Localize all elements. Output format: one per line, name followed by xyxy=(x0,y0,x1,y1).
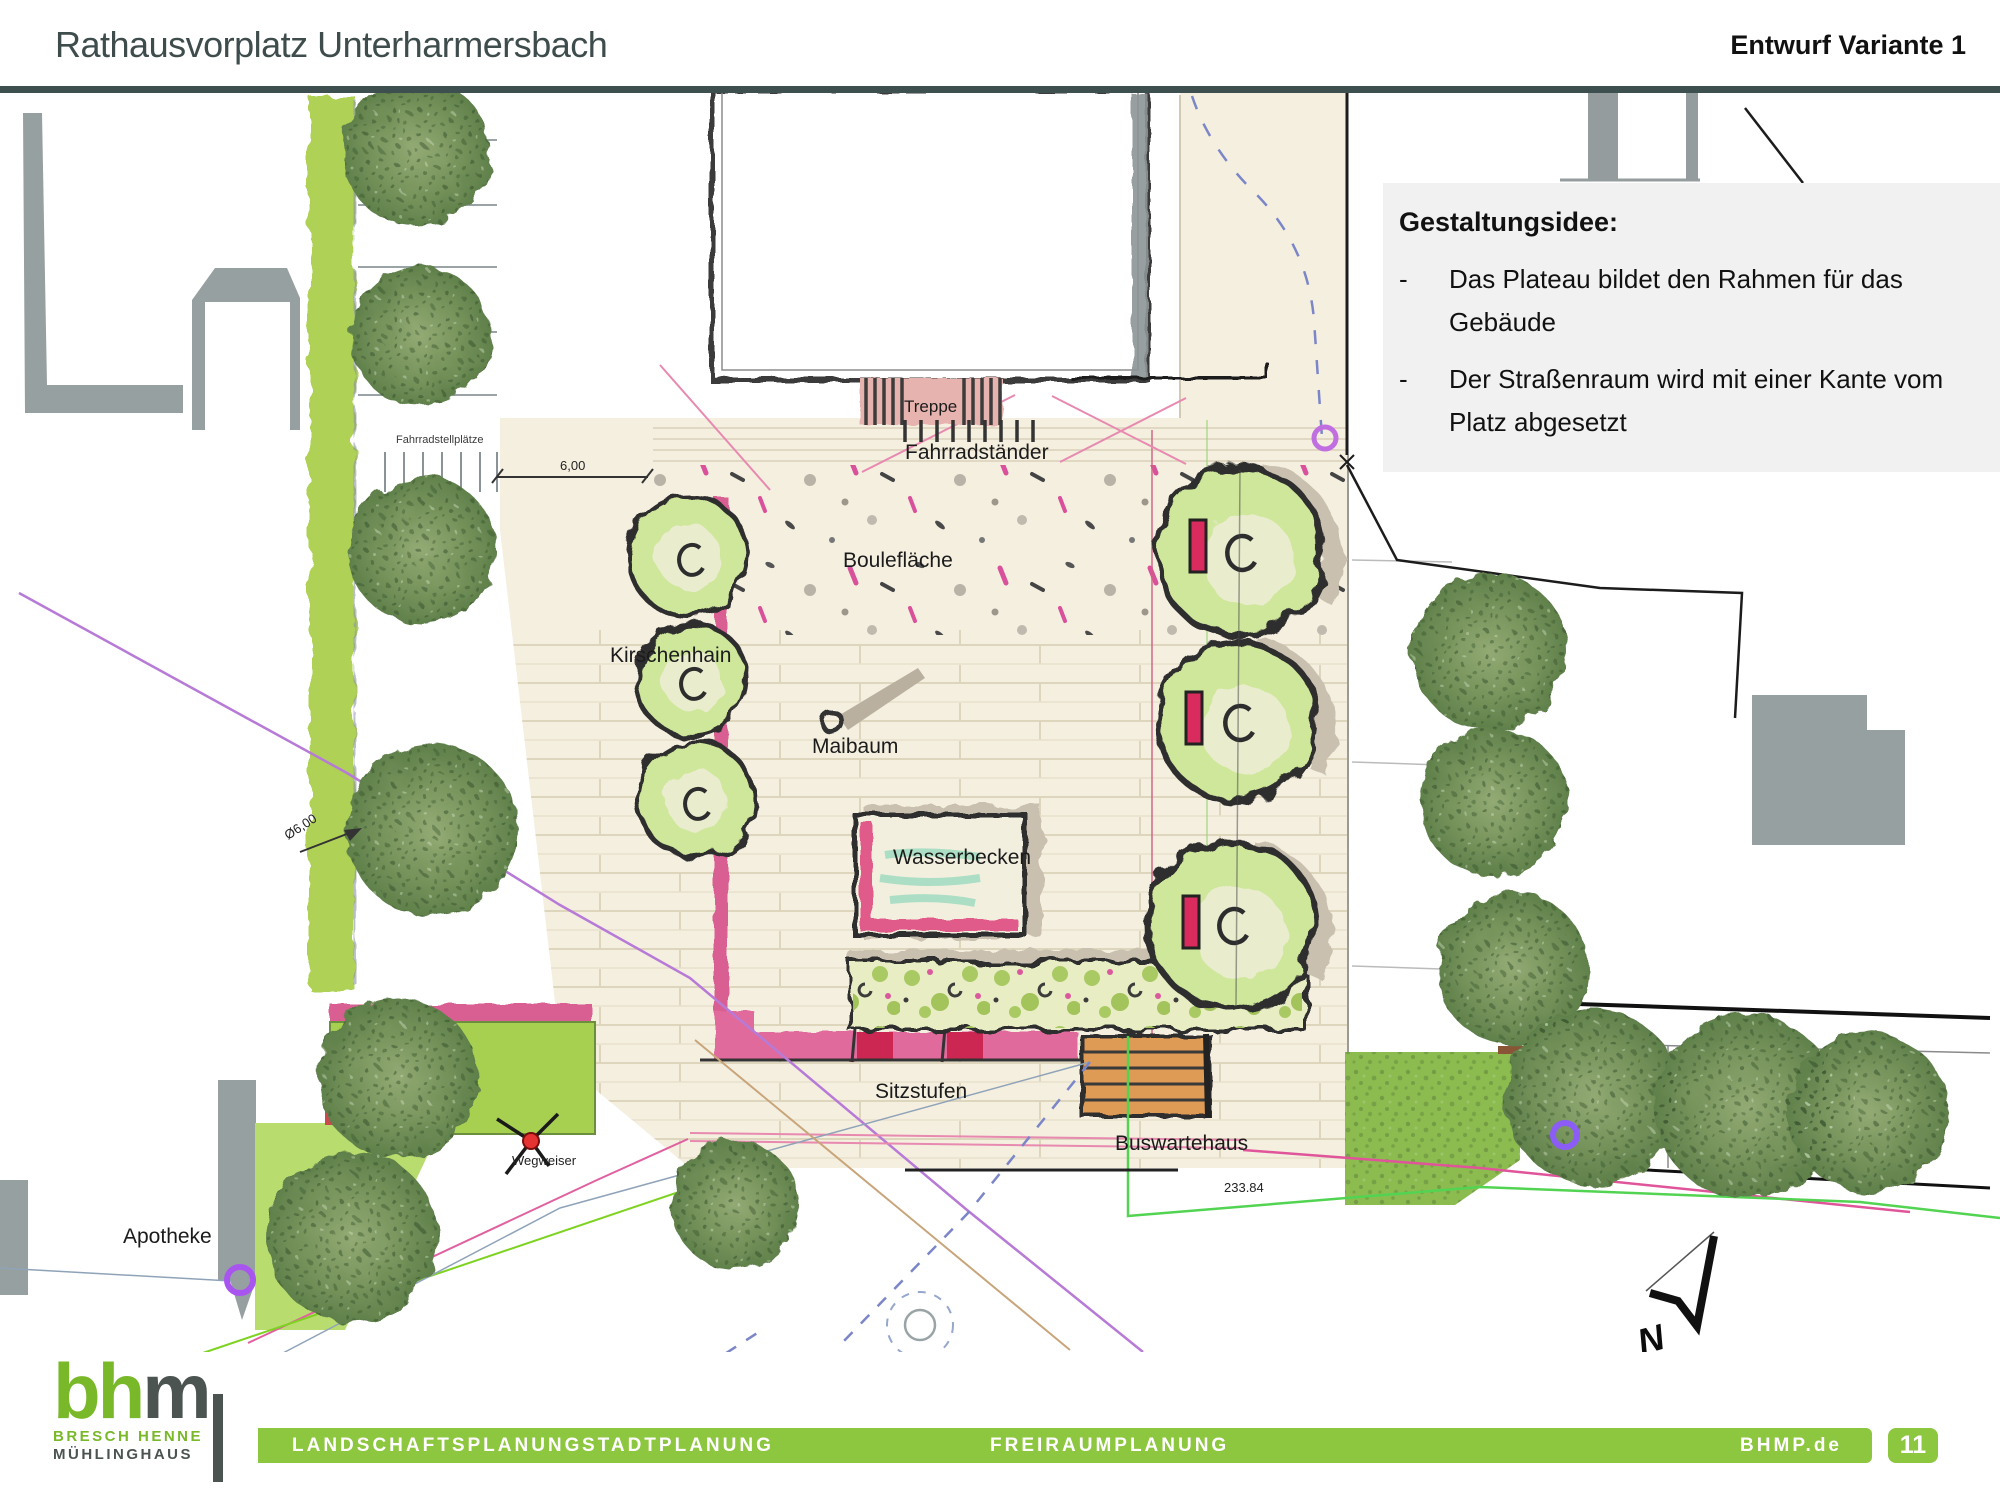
label-wegweiser: Wegweiser xyxy=(512,1153,577,1168)
service-landschaftsplanung: LANDSCHAFTSPLANUNG xyxy=(292,1435,582,1457)
label-sitzstufen: Sitzstufen xyxy=(875,1080,967,1103)
bullet-dash: - xyxy=(1399,358,1449,444)
idea-bullet: - Das Plateau bildet den Rahmen für das … xyxy=(1399,258,1980,344)
logo-line2: MÜHLINGHAUS xyxy=(53,1446,253,1463)
page-title: Rathausvorplatz Unterharmersbach xyxy=(55,24,607,66)
rathaus-building xyxy=(712,90,1148,380)
slide-header: Rathausvorplatz Unterharmersbach Entwurf… xyxy=(0,0,2000,93)
logo-line1: BRESCH HENNE xyxy=(53,1428,253,1445)
plaza-trees-right xyxy=(1148,468,1332,1009)
variant-title: Entwurf Variante 1 xyxy=(1730,30,1966,61)
kirschenhain-trees xyxy=(628,496,754,858)
label-wasserbecken: Wasserbecken xyxy=(893,846,1031,869)
label-elevation: 233.84 xyxy=(1224,1180,1264,1195)
label-fahrradstellplaetze: Fahrradstellplätze xyxy=(396,434,483,446)
idea-box: Gestaltungsidee: - Das Plateau bildet de… xyxy=(1383,183,2000,472)
label-treppe: Treppe xyxy=(904,397,957,416)
bullet-text: Der Straßenraum wird mit einer Kante vom… xyxy=(1449,358,1980,444)
footer-bar: LANDSCHAFTSPLANUNG STADTPLANUNG FREIRAUM… xyxy=(258,1428,1872,1463)
logo-bh: bh xyxy=(53,1347,142,1435)
buswartehaus-shelter xyxy=(1082,1034,1210,1118)
label-bouleflaeche: Boulefläche xyxy=(843,549,953,572)
label-maibaum: Maibaum xyxy=(812,735,898,758)
website-link[interactable]: BHMP.de xyxy=(1740,1435,1842,1457)
slide: Fahrradstellplätze 6,00 Treppe Fahrradst… xyxy=(0,0,2000,1500)
wasserbecken-basin xyxy=(855,806,1042,938)
bullet-dash: - xyxy=(1399,258,1449,344)
label-kirschenhain: Kirschenhain xyxy=(610,644,731,667)
logo-m: m xyxy=(142,1347,208,1435)
service-freiraumplanung: FREIRAUMPLANUNG xyxy=(990,1435,1229,1457)
service-stadtplanung: STADTPLANUNG xyxy=(582,1435,774,1457)
bhm-logo-text: bhm xyxy=(53,1356,253,1426)
bullet-text: Das Plateau bildet den Rahmen für das Ge… xyxy=(1449,258,1980,344)
bhm-logo: bhm BRESCH HENNE MÜHLINGHAUS xyxy=(53,1356,253,1463)
label-buswartehaus: Buswartehaus xyxy=(1115,1132,1248,1155)
label-apotheke: Apotheke xyxy=(123,1225,212,1248)
page-number-badge: 11 xyxy=(1888,1428,1938,1463)
footer-background xyxy=(0,1352,2000,1500)
idea-bullet: - Der Straßenraum wird mit einer Kante v… xyxy=(1399,358,1980,444)
label-dim-width: 6,00 xyxy=(560,458,585,473)
label-fahrradstaender: Fahrradständer xyxy=(905,441,1049,464)
logo-m-tail xyxy=(213,1394,223,1482)
idea-box-title: Gestaltungsidee: xyxy=(1399,207,1980,238)
